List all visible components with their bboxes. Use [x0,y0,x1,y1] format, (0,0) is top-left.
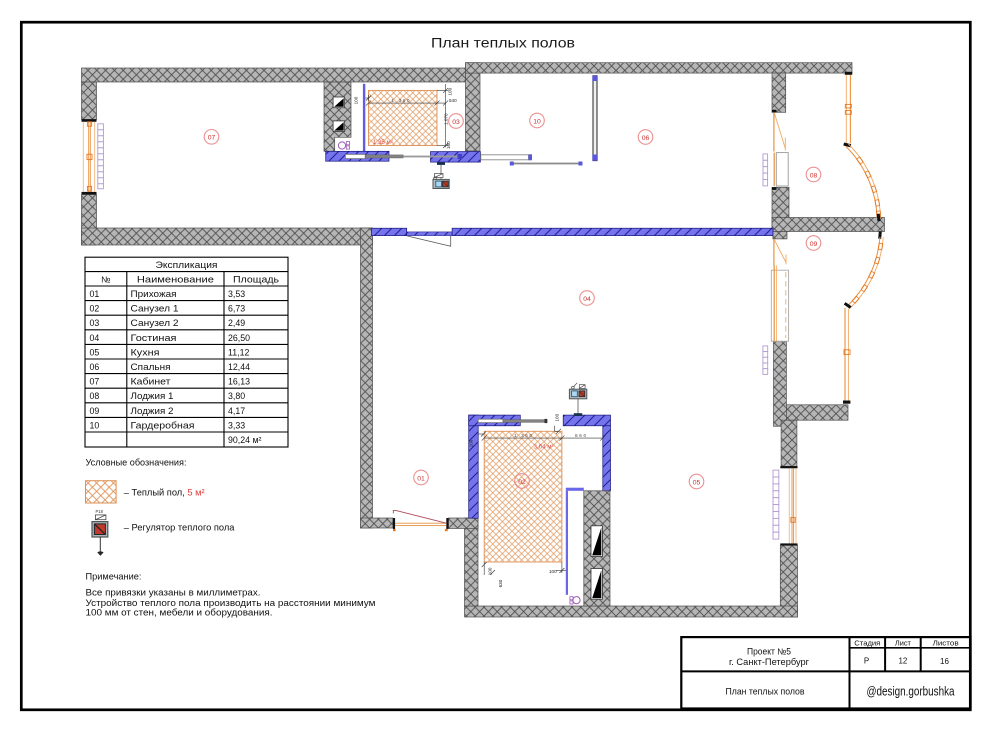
svg-text:10: 10 [533,118,541,125]
svg-text:@design.gorbushka: @design.gorbushka [867,685,955,699]
svg-text:08: 08 [90,391,100,401]
svg-text:100: 100 [488,567,493,575]
svg-text:04: 04 [583,296,591,303]
svg-text:План теплых полов: План теплых полов [726,687,805,697]
svg-text:07: 07 [90,377,100,387]
svg-text:Условные обозначения:: Условные обозначения: [86,458,187,468]
svg-text:Спальня: Спальня [131,362,171,372]
svg-text:16,13: 16,13 [228,377,250,387]
svg-text:05: 05 [693,479,701,486]
svg-text:11,12: 11,12 [228,347,249,357]
svg-text:Санузел 1: Санузел 1 [131,304,179,314]
svg-text:09: 09 [810,241,818,248]
svg-text:Площадь: Площадь [233,275,279,285]
svg-text:100: 100 [554,413,559,421]
svg-text:Примечание:: Примечание: [86,572,142,582]
svg-text:06: 06 [642,135,650,142]
svg-text:Р18: Р18 [96,509,104,514]
svg-text:06: 06 [90,362,100,372]
svg-text:540: 540 [449,98,457,103]
svg-text:3,80: 3,80 [228,391,245,401]
svg-text:3,33: 3,33 [228,420,245,430]
svg-text:26,50: 26,50 [228,333,250,343]
svg-text:03: 03 [90,318,100,328]
svg-text:План теплых полов: План теплых полов [431,36,575,51]
svg-text:04: 04 [90,333,100,343]
svg-text:07: 07 [208,135,216,142]
svg-text:Лоджия 1: Лоджия 1 [131,391,174,401]
svg-text:Все привязки указаны в миллиме: Все привязки указаны в миллиметрах. [86,587,261,597]
svg-text:860: 860 [575,433,586,438]
svg-text:100: 100 [469,439,474,447]
svg-text:3,64 м²: 3,64 м² [534,444,554,451]
svg-text:100: 100 [353,96,358,104]
svg-text:100: 100 [446,141,451,149]
svg-text:630: 630 [498,579,503,587]
svg-text:№: № [101,275,110,285]
svg-text:3,53: 3,53 [228,289,245,299]
svg-text:Санузел 2: Санузел 2 [131,318,179,328]
svg-text:Наименование: Наименование [137,275,214,285]
svg-text:03: 03 [452,119,460,126]
svg-text:Прихожая: Прихожая [131,289,177,299]
svg-text:100 мм от стен, мебели и обору: 100 мм от стен, мебели и оборудования. [86,607,273,617]
svg-text:Листов: Листов [933,638,959,647]
svg-text:Р: Р [864,657,869,666]
svg-text:Лист: Лист [895,638,912,647]
svg-text:Лоджия 2: Лоджия 2 [131,406,174,416]
svg-text:Проект №5: Проект №5 [747,647,791,657]
svg-text:Стадия: Стадия [854,638,880,647]
svg-text:1.070: 1.070 [443,113,448,125]
svg-text:100: 100 [549,569,557,574]
svg-text:Экспликация: Экспликация [156,260,218,270]
svg-text:02: 02 [518,479,526,486]
svg-text:г. Санкт-Петербург: г. Санкт-Петербург [729,657,809,667]
svg-text:6,73: 6,73 [228,304,245,314]
svg-text:Гардеробная: Гардеробная [131,420,195,430]
svg-text:02: 02 [90,304,100,314]
svg-text:100: 100 [448,87,453,95]
svg-text:12,44: 12,44 [228,362,250,372]
svg-text:10: 10 [90,420,100,430]
svg-text:– Регулятор теплого пола: – Регулятор теплого пола [124,522,236,532]
svg-text:01: 01 [417,475,425,482]
svg-text:09: 09 [90,406,100,416]
svg-text:16: 16 [940,657,949,666]
svg-text:2,49: 2,49 [228,318,245,328]
svg-text:Устройство теплого пола произв: Устройство теплого пола производить на р… [86,598,376,608]
svg-text:01: 01 [90,289,100,299]
svg-text:Кабинет: Кабинет [131,377,171,387]
svg-text:1,35 м²: 1,35 м² [373,139,393,146]
svg-text:4,17: 4,17 [228,406,245,416]
svg-text:Гостиная: Гостиная [131,333,177,343]
svg-text:– Теплый пол, 5 м²: – Теплый пол, 5 м² [124,488,205,498]
svg-text:12: 12 [898,657,907,666]
svg-text:05: 05 [90,347,100,357]
svg-text:Кухня: Кухня [131,347,160,357]
svg-text:08: 08 [810,172,818,179]
svg-text:90,24 м²: 90,24 м² [228,435,262,445]
